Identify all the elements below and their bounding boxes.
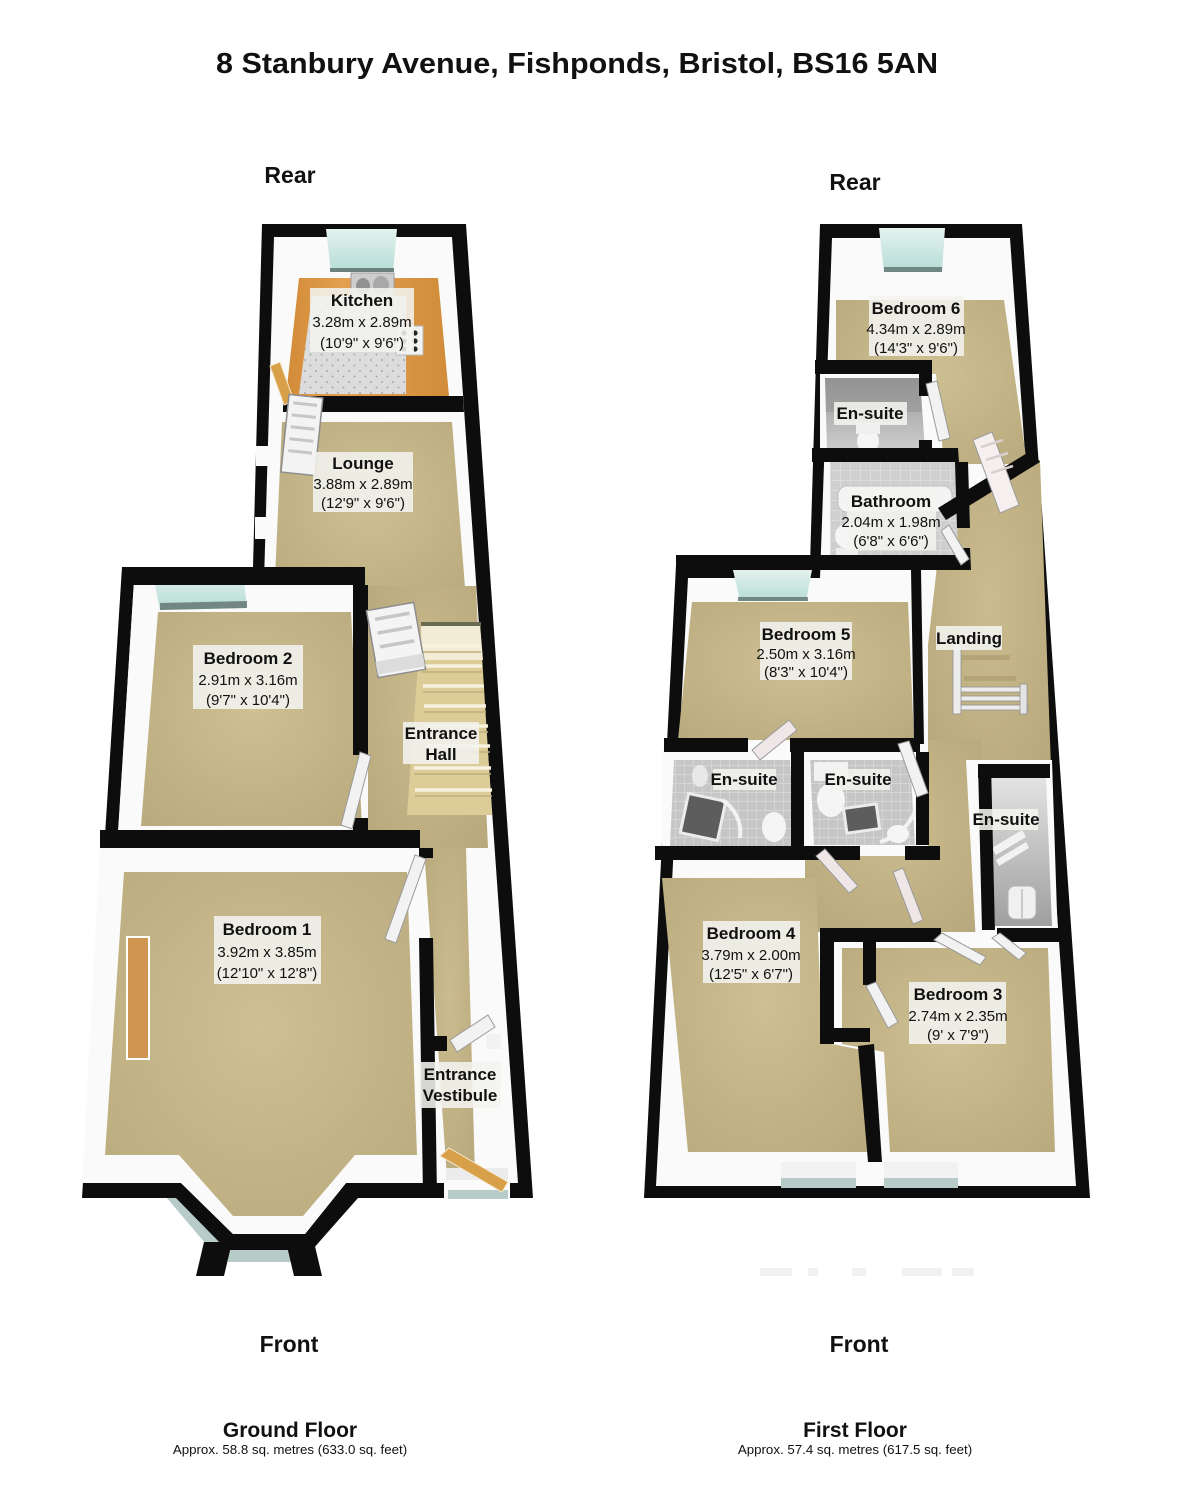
svg-text:Ground Floor: Ground Floor [223,1419,357,1442]
svg-text:3.79m x 2.00m: 3.79m x 2.00m [701,947,800,964]
svg-text:3.92m x 3.85m: 3.92m x 3.85m [217,944,316,961]
svg-text:En-suite: En-suite [710,770,777,789]
svg-text:(8'3" x 10'4"): (8'3" x 10'4") [764,664,848,681]
svg-text:First Floor: First Floor [803,1419,907,1442]
svg-text:Bathroom: Bathroom [851,492,931,511]
svg-text:3.88m x 2.89m: 3.88m x 2.89m [313,476,412,493]
svg-text:Entrance: Entrance [424,1065,497,1084]
svg-text:(12'5" x 6'7"): (12'5" x 6'7") [709,966,793,983]
svg-text:Approx. 58.8 sq. metres (633.: Approx. 58.8 sq. metres (633.0 sq. feet) [173,1442,407,1457]
svg-text:Bedroom 6: Bedroom 6 [872,299,961,318]
svg-text:Kitchen: Kitchen [331,291,393,310]
svg-text:Hall: Hall [425,745,456,764]
svg-text:Bedroom 2: Bedroom 2 [204,649,293,668]
svg-text:Landing: Landing [936,629,1002,648]
svg-text:(9'7" x 10'4"): (9'7" x 10'4") [206,692,290,709]
svg-text:Entrance: Entrance [405,724,478,743]
svg-text:2.74m x 2.35m: 2.74m x 2.35m [908,1008,1007,1025]
svg-text:Rear: Rear [829,169,880,195]
svg-text:(12'10" x 12'8"): (12'10" x 12'8") [217,965,318,982]
svg-text:En-suite: En-suite [836,404,903,423]
svg-text:Lounge: Lounge [332,454,393,473]
svg-text:(10'9" x 9'6"): (10'9" x 9'6") [320,335,404,352]
svg-text:2.91m x 3.16m: 2.91m x 3.16m [198,672,297,689]
svg-text:Bedroom 1: Bedroom 1 [223,920,312,939]
svg-text:En-suite: En-suite [972,810,1039,829]
svg-text:Rear: Rear [264,162,315,188]
svg-text:Bedroom 5: Bedroom 5 [762,625,851,644]
svg-text:2.04m x 1.98m: 2.04m x 1.98m [841,514,940,531]
svg-text:Vestibule: Vestibule [423,1086,498,1105]
svg-text:Front: Front [830,1331,889,1357]
svg-text:Bedroom 4: Bedroom 4 [707,924,796,943]
svg-text:3.28m x 2.89m: 3.28m x 2.89m [312,314,411,331]
svg-text:Bedroom 3: Bedroom 3 [914,985,1003,1004]
svg-text:En-suite: En-suite [824,770,891,789]
svg-text:Approx. 57.4 sq. metres (617.: Approx. 57.4 sq. metres (617.5 sq. feet) [738,1442,972,1457]
svg-text:4.34m x 2.89m: 4.34m x 2.89m [866,321,965,338]
svg-text:(14'3" x 9'6"): (14'3" x 9'6") [874,340,958,357]
svg-text:8 Stanbury Avenue, Fishponds,: 8 Stanbury Avenue, Fishponds, Bristol, B… [216,48,938,80]
svg-text:Front: Front [260,1331,319,1357]
svg-text:2.50m x 3.16m: 2.50m x 3.16m [756,646,855,663]
svg-text:(6'8" x 6'6"): (6'8" x 6'6") [853,533,929,550]
svg-text:(9' x 7'9"): (9' x 7'9") [927,1027,989,1044]
svg-text:(12'9" x 9'6"): (12'9" x 9'6") [321,495,405,512]
